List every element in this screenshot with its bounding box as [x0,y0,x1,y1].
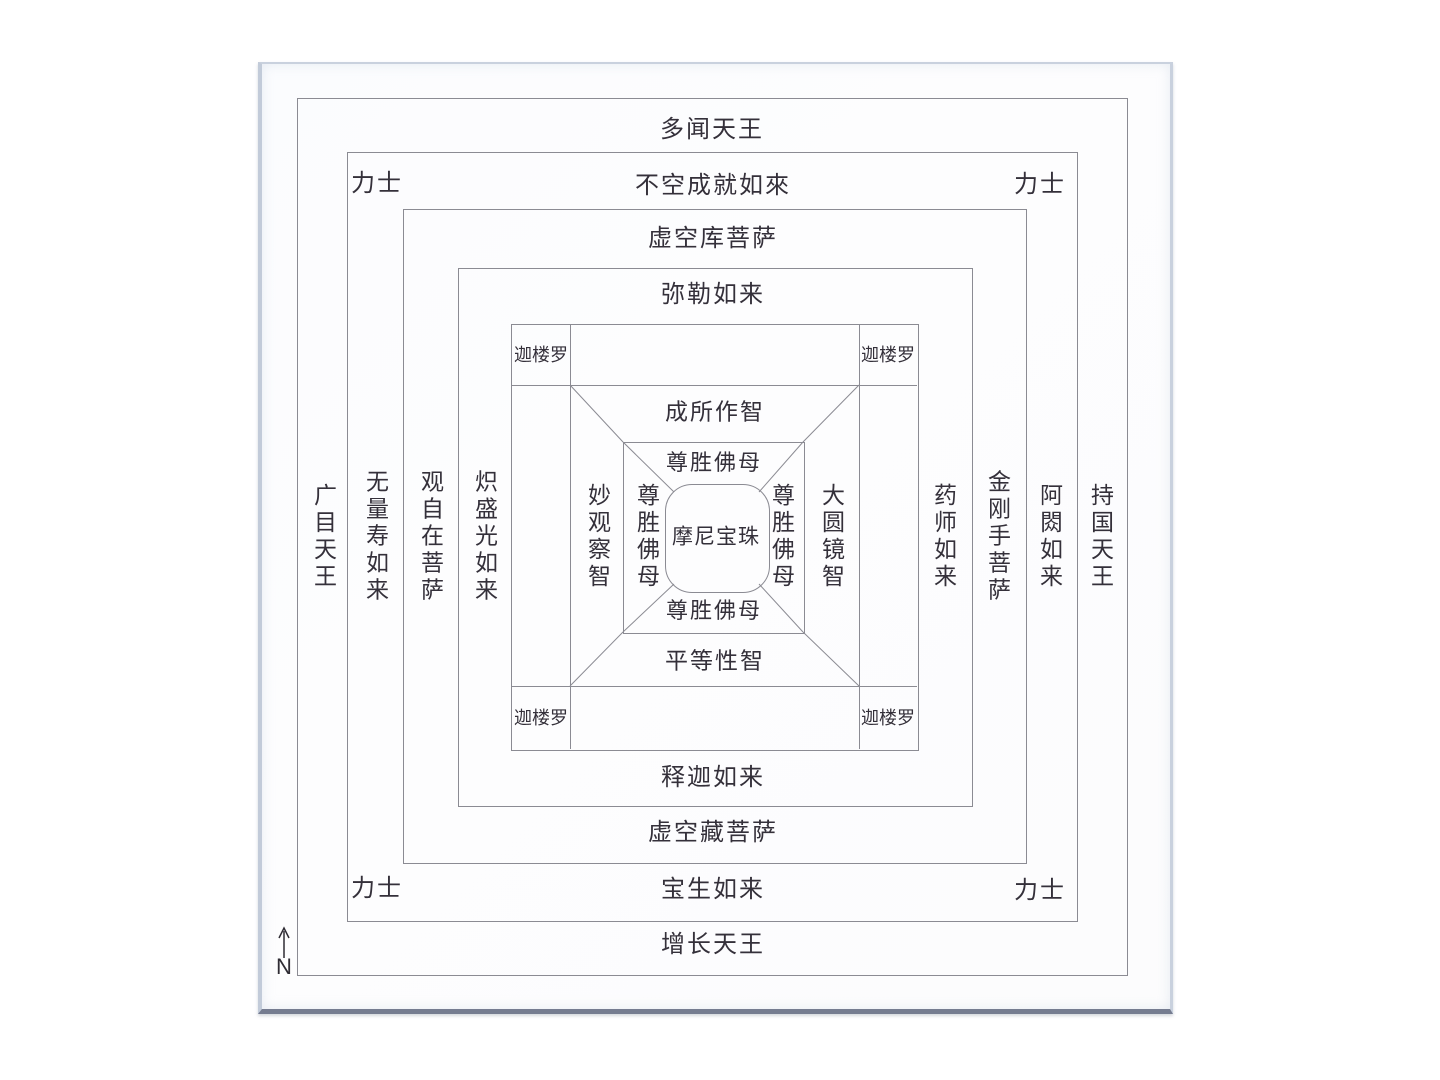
guard-label-bottom-left: 力士 [351,877,403,901]
garuda-label-bottom-left: 迦楼罗 [514,709,568,727]
mother-top-label: 尊胜佛母 [666,452,762,474]
ring2-top-label: 不空成就如來 [635,174,791,198]
ring4-right-label: 药师如来 [932,483,955,591]
ring1-top-label: 多闻天王 [660,118,764,142]
mandala-diagram-page: N 多闻天王 增长天王 广目天王 持国天王 不空成就如來 宝生如来 无量寿如来 … [0,0,1440,1080]
compass-north-label: N [276,954,292,980]
center-jewel-label: 摩尼宝珠 [672,527,760,548]
wisdom-right-label: 大圆镜智 [820,483,843,591]
ring3-left-label: 观自在菩萨 [419,470,442,605]
ring-5-grid-hline-bottom [511,686,917,687]
ring4-bottom-label: 释迦如来 [661,766,765,790]
ring-5-grid-hline-top [511,385,917,386]
wisdom-bottom-label: 平等性智 [665,650,765,673]
ring4-top-label: 弥勒如来 [661,283,765,307]
mother-right-label: 尊胜佛母 [770,483,793,591]
garuda-label-top-right: 迦楼罗 [861,346,915,364]
ring1-bottom-label: 增长天王 [661,933,765,957]
ring3-top-label: 虚空库菩萨 [648,227,778,251]
ring3-right-label: 金刚手菩萨 [986,470,1009,605]
ring2-left-label: 无量寿如来 [364,470,387,605]
mother-left-label: 尊胜佛母 [635,483,658,591]
ring2-right-label: 阿閦如来 [1038,483,1061,591]
ring1-left-label: 广目天王 [312,483,335,591]
ring1-right-label: 持国天王 [1089,483,1112,591]
guard-label-top-right: 力士 [1014,173,1066,197]
ring2-bottom-label: 宝生如来 [661,878,765,902]
guard-label-bottom-right: 力士 [1014,879,1066,903]
ring3-bottom-label: 虚空藏菩萨 [648,821,778,845]
garuda-label-top-left: 迦楼罗 [514,346,568,364]
guard-label-top-left: 力士 [351,172,403,196]
wisdom-top-label: 成所作智 [665,401,765,424]
garuda-label-bottom-right: 迦楼罗 [861,709,915,727]
mother-bottom-label: 尊胜佛母 [666,600,762,622]
wisdom-left-label: 妙观察智 [586,483,609,591]
ring4-left-label: 炽盛光如来 [473,470,496,605]
